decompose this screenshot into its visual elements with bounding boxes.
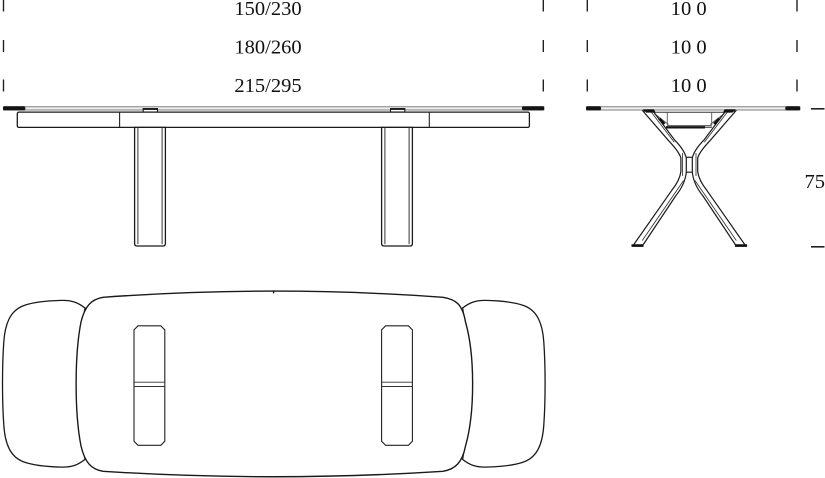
svg-text:10 0: 10 0 (671, 0, 707, 20)
svg-text:10 0: 10 0 (671, 37, 707, 59)
svg-text:215/295: 215/295 (234, 75, 301, 97)
svg-text:150/230: 150/230 (234, 0, 301, 20)
svg-text:75: 75 (805, 171, 825, 193)
svg-text:10 0: 10 0 (671, 75, 707, 97)
svg-text:180/260: 180/260 (234, 37, 301, 59)
